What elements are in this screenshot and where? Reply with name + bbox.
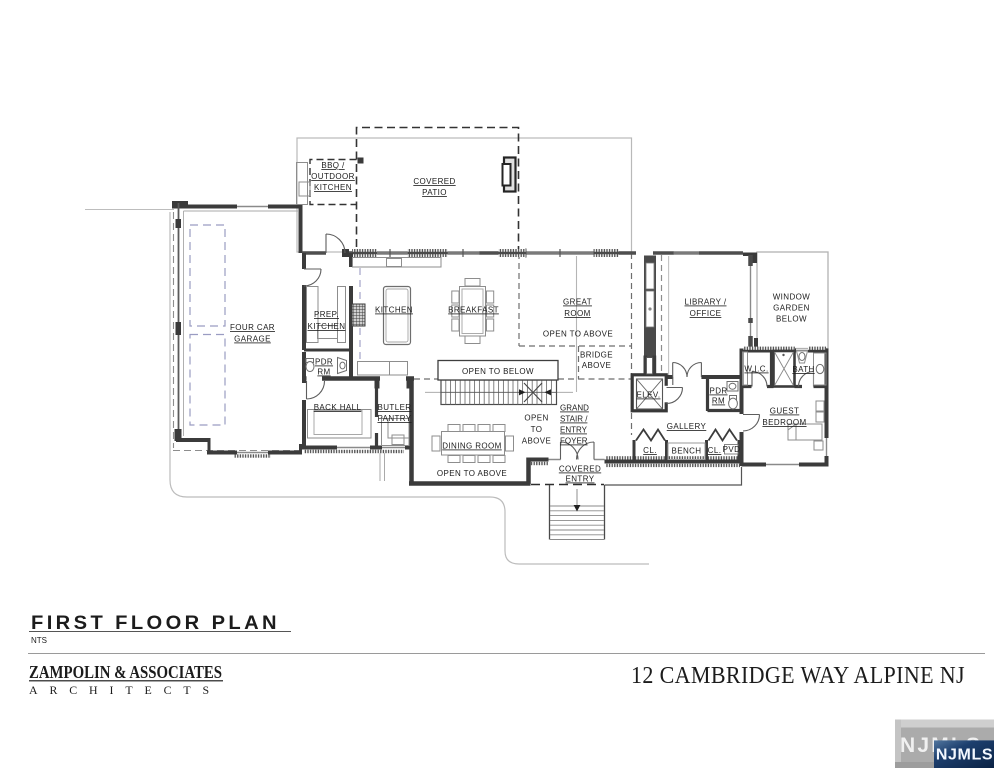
svg-text:ELEV.: ELEV.	[637, 391, 661, 400]
svg-text:GUEST: GUEST	[770, 407, 800, 416]
svg-text:GARAGE: GARAGE	[234, 335, 271, 344]
svg-text:KITCHEN: KITCHEN	[314, 183, 352, 192]
svg-text:GRAND: GRAND	[560, 404, 589, 413]
svg-text:FIRST FLOOR PLAN: FIRST FLOOR PLAN	[31, 613, 280, 634]
svg-text:FOYER: FOYER	[560, 437, 588, 446]
svg-text:NTS: NTS	[31, 636, 47, 645]
svg-text:OPEN TO ABOVE: OPEN TO ABOVE	[543, 330, 613, 339]
svg-text:CL.: CL.	[643, 446, 657, 455]
svg-text:PDR: PDR	[709, 387, 727, 396]
svg-text:GARDEN: GARDEN	[773, 304, 810, 313]
svg-text:ZAMPOLIN & ASSOCIATES: ZAMPOLIN & ASSOCIATES	[29, 662, 222, 682]
svg-text:BEDROOM: BEDROOM	[762, 418, 806, 427]
svg-text:PANTRY: PANTRY	[377, 414, 411, 423]
svg-text:KITCHEN: KITCHEN	[308, 322, 346, 331]
svg-text:OPEN: OPEN	[524, 414, 548, 423]
svg-text:PATIO: PATIO	[422, 188, 447, 197]
svg-text:WINDOW: WINDOW	[773, 293, 811, 302]
svg-text:STAIR /: STAIR /	[560, 415, 588, 424]
svg-text:OUTDOOR: OUTDOOR	[311, 172, 355, 181]
svg-text:ENTRY: ENTRY	[560, 426, 588, 435]
svg-text:OFFICE: OFFICE	[690, 309, 722, 318]
svg-text:BACK HALL: BACK HALL	[314, 403, 362, 412]
svg-text:OPEN TO ABOVE: OPEN TO ABOVE	[437, 469, 507, 478]
svg-text:ABOVE: ABOVE	[582, 361, 612, 370]
svg-text:COVERED: COVERED	[559, 465, 601, 474]
svg-text:GALLERY: GALLERY	[667, 422, 707, 431]
svg-text:BELOW: BELOW	[776, 315, 807, 324]
svg-text:ROOM: ROOM	[564, 309, 591, 318]
svg-text:RM: RM	[317, 368, 330, 377]
svg-text:KITCHEN: KITCHEN	[375, 306, 413, 315]
svg-text:PDR: PDR	[315, 358, 333, 367]
svg-text:W.I.C.: W.I.C.	[744, 365, 768, 374]
svg-text:BREAKFAST: BREAKFAST	[448, 306, 499, 315]
svg-text:LIBRARY /: LIBRARY /	[685, 298, 727, 307]
svg-text:BATH: BATH	[792, 365, 814, 374]
svg-text:12 CAMBRIDGE WAY ALPINE NJ: 12 CAMBRIDGE WAY ALPINE NJ	[631, 662, 965, 689]
svg-text:COVERED: COVERED	[413, 177, 455, 186]
svg-text:CL.: CL.	[708, 446, 722, 455]
svg-text:RM: RM	[712, 397, 725, 406]
svg-text:PVD: PVD	[723, 445, 741, 454]
svg-text:FOUR CAR: FOUR CAR	[230, 323, 275, 332]
svg-text:BRIDGE: BRIDGE	[580, 351, 613, 360]
svg-text:GREAT: GREAT	[563, 298, 592, 307]
svg-text:ARCHITECTS: ARCHITECTS	[29, 683, 221, 697]
svg-text:TO: TO	[531, 425, 543, 434]
svg-text:ABOVE: ABOVE	[522, 437, 552, 446]
svg-text:PREP.: PREP.	[314, 310, 339, 319]
svg-text:BBQ /: BBQ /	[321, 161, 345, 170]
svg-text:BENCH: BENCH	[671, 447, 701, 456]
svg-text:DINING ROOM: DINING ROOM	[442, 442, 502, 451]
svg-text:ENTRY: ENTRY	[566, 475, 595, 484]
svg-text:OPEN TO BELOW: OPEN TO BELOW	[462, 367, 534, 376]
svg-text:BUTLER: BUTLER	[378, 403, 412, 412]
svg-text:NJMLS: NJMLS	[936, 747, 993, 764]
